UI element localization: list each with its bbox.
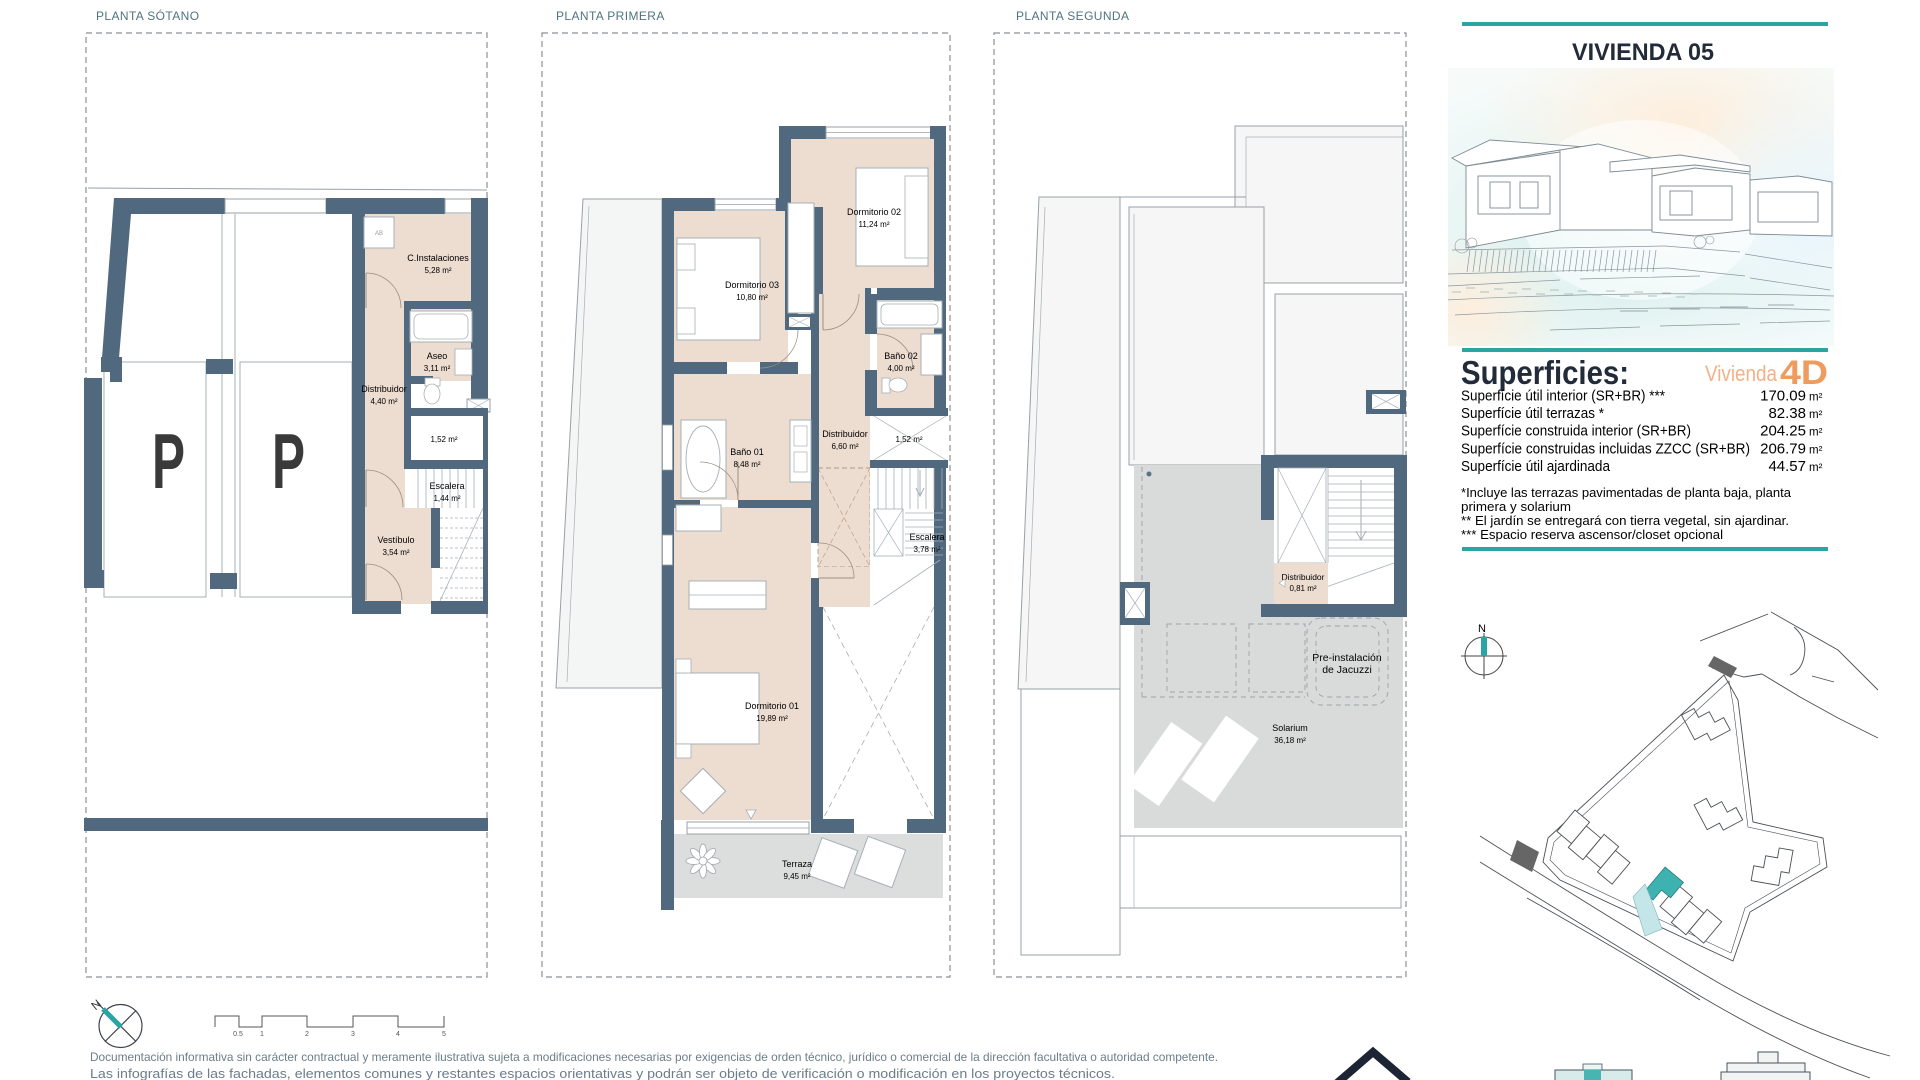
svg-text:Documentación informativa sin: Documentación informativa sin carácter c… <box>90 1050 1218 1064</box>
svg-text:10,80 m²: 10,80 m² <box>736 293 768 302</box>
svg-text:4,00 m²: 4,00 m² <box>887 364 914 373</box>
svg-text:Terraza: Terraza <box>782 859 812 869</box>
svg-text:N: N <box>1478 623 1486 635</box>
svg-text:Vivienda: Vivienda <box>1705 361 1778 386</box>
svg-text:m²: m² <box>1809 462 1823 474</box>
svg-text:Vestíbulo: Vestíbulo <box>377 535 414 545</box>
svg-text:m²: m² <box>1809 427 1823 439</box>
svg-text:Dormitorio 02: Dormitorio 02 <box>847 207 901 217</box>
svg-text:1,52 m²: 1,52 m² <box>430 435 457 444</box>
svg-text:m²: m² <box>1809 444 1823 456</box>
svg-text:primera y solarium: primera y solarium <box>1461 499 1571 514</box>
svg-text:3,11 m²: 3,11 m² <box>424 364 451 373</box>
svg-text:204.25: 204.25 <box>1760 423 1806 440</box>
svg-text:Dormitorio 01: Dormitorio 01 <box>745 701 799 711</box>
svg-text:m²: m² <box>1809 392 1823 404</box>
svg-text:Dormitorio 03: Dormitorio 03 <box>725 280 779 290</box>
svg-text:0,81 m²: 0,81 m² <box>1289 584 1316 593</box>
svg-text:82.38: 82.38 <box>1768 405 1806 422</box>
svg-text:3: 3 <box>351 1031 355 1038</box>
svg-text:m²: m² <box>1809 409 1823 421</box>
svg-text:Superfície útil terrazas *: Superfície útil terrazas * <box>1461 405 1604 422</box>
svg-text:44.57: 44.57 <box>1768 458 1806 475</box>
svg-text:11,24 m²: 11,24 m² <box>859 220 890 229</box>
svg-text:1,44 m²: 1,44 m² <box>433 494 460 503</box>
svg-text:Distribuidor: Distribuidor <box>822 429 868 439</box>
svg-text:PLANTA SEGUNDA: PLANTA SEGUNDA <box>1016 9 1129 23</box>
svg-text:P: P <box>272 417 305 505</box>
svg-text:Aseo: Aseo <box>427 351 448 361</box>
svg-text:36,18 m²: 36,18 m² <box>1274 736 1306 745</box>
svg-text:3,78 m²: 3,78 m² <box>913 545 940 554</box>
svg-text:19,89 m²: 19,89 m² <box>756 714 788 723</box>
svg-text:Superfície útil ajardinada: Superfície útil ajardinada <box>1461 458 1611 475</box>
svg-text:5,28 m²: 5,28 m² <box>424 266 451 275</box>
svg-text:170.09: 170.09 <box>1760 388 1806 405</box>
svg-text:Baño 02: Baño 02 <box>884 351 918 361</box>
svg-text:PLANTA SÓTANO: PLANTA SÓTANO <box>96 8 199 23</box>
svg-text:5: 5 <box>442 1031 446 1038</box>
svg-text:Superficies:: Superficies: <box>1461 354 1629 391</box>
svg-text:3,54 m²: 3,54 m² <box>382 548 409 557</box>
svg-text:VIVIENDA 05: VIVIENDA 05 <box>1572 39 1714 66</box>
svg-text:4D: 4D <box>1780 354 1828 392</box>
svg-text:C.Instalaciones: C.Instalaciones <box>407 253 469 263</box>
svg-text:1: 1 <box>260 1031 264 1038</box>
svg-text:Escalera: Escalera <box>909 532 944 542</box>
svg-text:Escalera: Escalera <box>429 481 464 491</box>
svg-text:** El jardín se entregará con: ** El jardín se entregará con tierra veg… <box>1461 513 1789 528</box>
svg-text:AB: AB <box>375 231 383 237</box>
svg-text:Las infografías de las fachada: Las infografías de las fachadas, element… <box>90 1067 1115 1080</box>
svg-text:0.5: 0.5 <box>233 1031 243 1038</box>
svg-text:Superfície construidas incluid: Superfície construidas incluidas ZZCC (S… <box>1461 440 1750 457</box>
svg-text:Distribuidor: Distribuidor <box>361 384 407 394</box>
svg-text:Baño 01: Baño 01 <box>730 447 764 457</box>
svg-text:Distribuidor: Distribuidor <box>1282 572 1325 582</box>
svg-text:4,40 m²: 4,40 m² <box>370 397 397 406</box>
svg-text:P: P <box>152 417 185 505</box>
svg-text:8,48 m²: 8,48 m² <box>733 460 760 469</box>
svg-text:Superfície construida interior: Superfície construida interior (SR+BR) <box>1461 423 1691 440</box>
svg-text:PLANTA PRIMERA: PLANTA PRIMERA <box>556 9 665 23</box>
svg-text:9,45 m²: 9,45 m² <box>783 872 810 881</box>
svg-text:4: 4 <box>396 1031 400 1038</box>
svg-text:de Jacuzzi: de Jacuzzi <box>1322 664 1372 676</box>
svg-text:206.79: 206.79 <box>1760 440 1806 457</box>
svg-text:Superfície útil interior (SR+B: Superfície útil interior (SR+BR) *** <box>1461 388 1665 405</box>
svg-text:1,52 m²: 1,52 m² <box>895 435 922 444</box>
svg-text:2: 2 <box>305 1031 309 1038</box>
svg-text:*Incluye las terrazas paviment: *Incluye las terrazas pavimentadas de pl… <box>1461 485 1792 500</box>
svg-text:6,60 m²: 6,60 m² <box>831 442 858 451</box>
svg-text:Solarium: Solarium <box>1272 723 1308 733</box>
svg-text:Pre-instalación: Pre-instalación <box>1312 652 1382 664</box>
svg-text:*** Espacio reserva ascensor/c: *** Espacio reserva ascensor/closet opci… <box>1461 527 1723 542</box>
